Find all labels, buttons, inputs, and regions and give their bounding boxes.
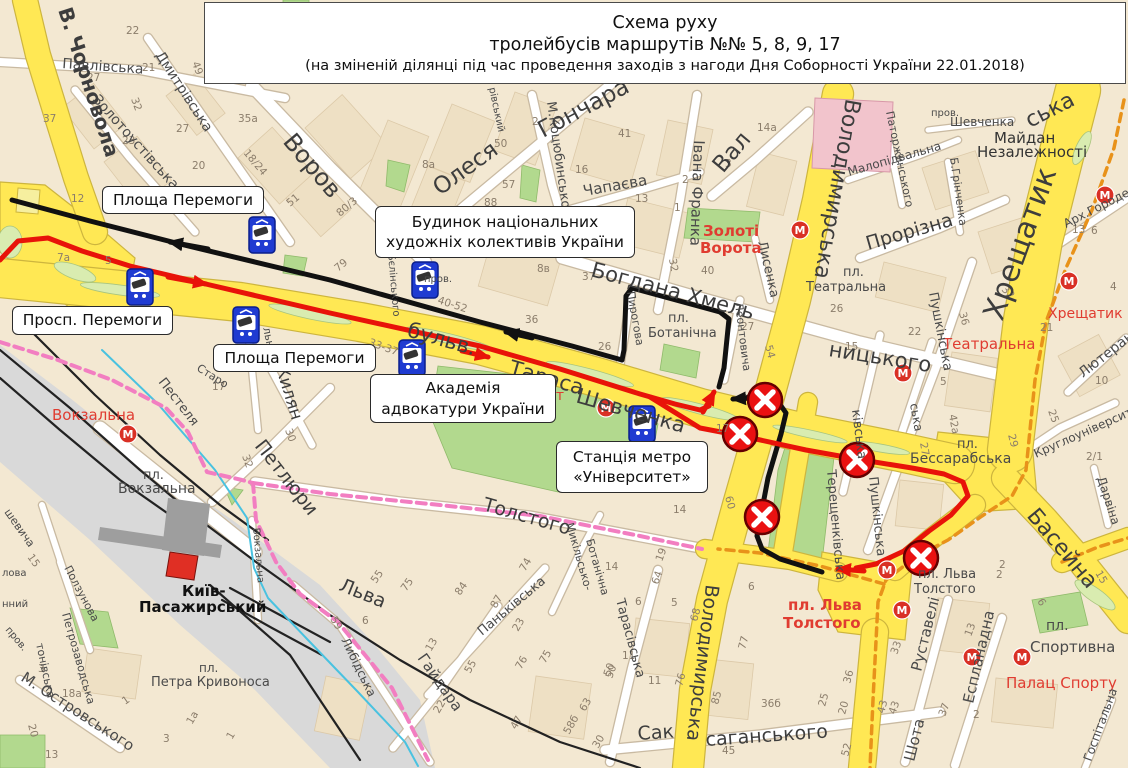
street-label: пл. (957, 437, 978, 452)
street-label: Театральна (942, 335, 1035, 353)
svg-text:М: М (882, 564, 893, 577)
house-number: 14 (605, 561, 619, 573)
house-number: 6 (362, 615, 369, 627)
street-label: Незалежності (977, 143, 1087, 161)
house-number: 2 (996, 569, 1003, 581)
street-label: Золоті (703, 222, 759, 240)
house-number: 6 (635, 596, 642, 608)
street-label: Театральна (805, 280, 886, 295)
house-number: 13 (635, 193, 648, 205)
svg-text:М: М (1017, 651, 1028, 664)
house-number: 20 (192, 160, 205, 172)
street-label: пл. Льва (918, 567, 976, 582)
house-number: 5 (940, 376, 947, 388)
house-number: 6 (748, 581, 755, 593)
street-label: Пасажирський (139, 598, 266, 616)
callout-prosp-peremohy: Просп. Перемоги (12, 306, 173, 335)
house-number: 5 (671, 597, 678, 609)
street-label: Ботанічна (648, 326, 717, 341)
callout-ploshcha-peremohy-2: Площа Перемоги (213, 344, 376, 372)
house-number: 2 (973, 709, 980, 721)
street-label: пл. (668, 311, 689, 326)
house-number: 5 (105, 255, 112, 267)
house-number: 40 (701, 265, 714, 277)
street-label: нний (2, 599, 28, 610)
house-number: 4 (1110, 281, 1117, 293)
street-label: пров. (424, 274, 452, 285)
house-number: 17 (716, 423, 729, 435)
scheme-title-line1: Схема руху (612, 13, 717, 33)
trolleybus-stop-icon (127, 269, 153, 305)
house-number: 8в (537, 263, 550, 275)
street-label: Петра Кривоноса (151, 675, 270, 690)
house-number: 14а (757, 122, 777, 134)
house-number: 6 (1091, 225, 1098, 237)
callout-ploshcha-peremohy-1: Площа Перемоги (102, 186, 264, 214)
road-closed-icon (745, 500, 779, 534)
house-number: 2 (682, 174, 689, 186)
house-number: 14 (673, 504, 687, 516)
house-number: 11 (648, 675, 661, 687)
house-number: 10 (1095, 375, 1108, 387)
house-number: 8а (422, 159, 435, 171)
house-number: 26 (830, 303, 844, 315)
house-number: 7а (57, 252, 70, 264)
street-label: Толстого (913, 582, 976, 597)
house-number: 2/1 (1086, 451, 1103, 463)
metro-icon: М (1013, 648, 1031, 666)
street-label: Палац Спорту (1006, 674, 1117, 692)
house-number: 26 (598, 341, 612, 353)
house-number: 41 (618, 128, 631, 140)
house-number: 36б (761, 698, 781, 710)
street-label: Толстого (783, 614, 861, 632)
metro-icon: М (893, 601, 911, 619)
street-label: Сак (637, 721, 675, 745)
street-label: Ворота (700, 239, 762, 257)
metro-icon: М (1060, 272, 1078, 290)
scheme-title-box: Схема руху тролейбусів маршрутів №№ 5, 8… (204, 2, 1126, 84)
street-label: Хрещатик (1048, 306, 1123, 322)
street-label: пл. Льва (788, 596, 862, 614)
rail-terminal (162, 498, 210, 556)
metro-icon: М (878, 561, 896, 579)
park (0, 735, 45, 768)
callout-stantsiya-metro-universytet: Станція метро«Університет» (556, 441, 708, 493)
house-number: 21 (1040, 322, 1053, 334)
house-number: 16 (575, 164, 589, 176)
house-number: 12 (71, 193, 84, 205)
svg-text:М: М (897, 604, 908, 617)
svg-text:М: М (123, 428, 134, 441)
metro-icon: М (119, 425, 137, 443)
street-label: пл. (1046, 618, 1069, 634)
house-number: 32 (666, 257, 680, 272)
house-number: 3 (163, 733, 170, 745)
street-label: Вокзальна (118, 481, 196, 497)
map-canvas: ММММММММММ3723272035а18/242227214932127а… (0, 0, 1128, 768)
house-number: 22 (908, 326, 921, 338)
street-label: пл. (843, 265, 864, 280)
house-number: 21 (142, 62, 155, 74)
svg-text:М: М (795, 224, 806, 237)
street-label: лова (2, 568, 27, 579)
house-number: 35а (238, 113, 258, 125)
house-number: 57 (502, 179, 515, 191)
trolleybus-stop-icon (249, 217, 275, 253)
metro-icon: М (791, 221, 809, 239)
street-label: Шевченка (950, 115, 1014, 129)
road-closed-icon (748, 383, 782, 417)
station-building (166, 552, 198, 580)
trolleybus-stop-icon (233, 307, 259, 343)
house-number: 22 (126, 25, 139, 37)
park (520, 165, 540, 202)
scheme-title-line3: (на зміненій ділянці під час проведення … (305, 58, 1025, 74)
street-label: Бессарабська (910, 451, 1011, 467)
house-number: 37 (43, 113, 56, 125)
callout-akademiya-advokatury: Академіяадвокатури України (370, 374, 556, 423)
scheme-title-line2: тролейбусів маршрутів №№ 5, 8, 9, 17 (489, 35, 840, 55)
house-number: 27 (176, 123, 189, 135)
house-number: 13 (45, 749, 58, 761)
street-label: Вокзальна (52, 406, 135, 424)
street-label: пл. (199, 661, 218, 675)
city-map: ММММММММММ3723272035а18/242227214932127а… (0, 0, 1128, 768)
house-number: 36 (525, 314, 539, 326)
house-number: 1 (674, 202, 681, 214)
callout-budynok-kolektyviv: Будинок національниххудожніх колективів … (375, 206, 635, 258)
street-label: Спортивна (1030, 638, 1115, 656)
svg-text:М: М (1064, 275, 1075, 288)
